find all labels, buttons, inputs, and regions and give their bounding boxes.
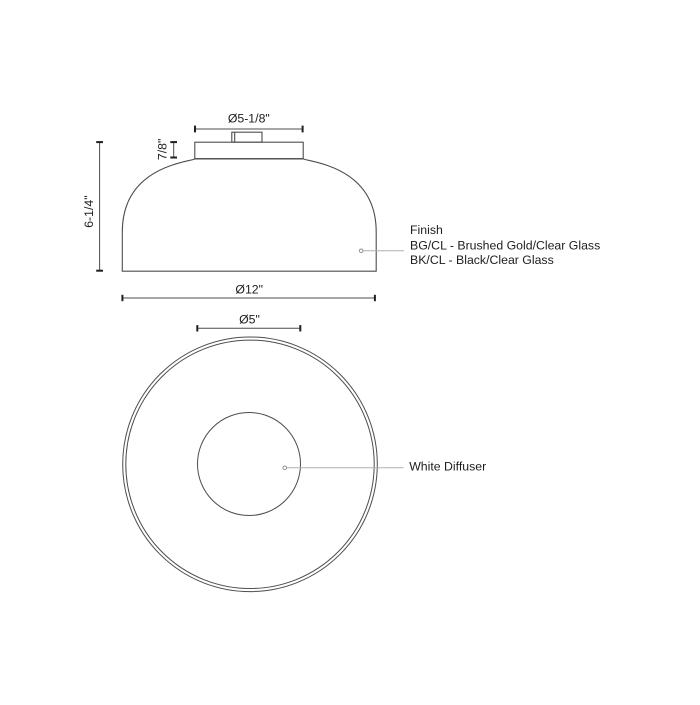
svg-text:6-1/4": 6-1/4" bbox=[82, 195, 96, 227]
svg-text:BK/CL - Black/Clear Glass: BK/CL - Black/Clear Glass bbox=[410, 253, 554, 267]
svg-text:7/8": 7/8" bbox=[155, 139, 169, 160]
svg-text:White Diffuser: White Diffuser bbox=[409, 459, 486, 473]
svg-text:Finish: Finish bbox=[410, 223, 443, 237]
svg-text:BG/CL - Brushed Gold/Clear Gla: BG/CL - Brushed Gold/Clear Glass bbox=[410, 238, 600, 252]
svg-text:Ø5": Ø5" bbox=[239, 313, 260, 327]
svg-text:Ø5-1/8": Ø5-1/8" bbox=[228, 112, 270, 126]
svg-text:Ø12": Ø12" bbox=[235, 283, 263, 297]
